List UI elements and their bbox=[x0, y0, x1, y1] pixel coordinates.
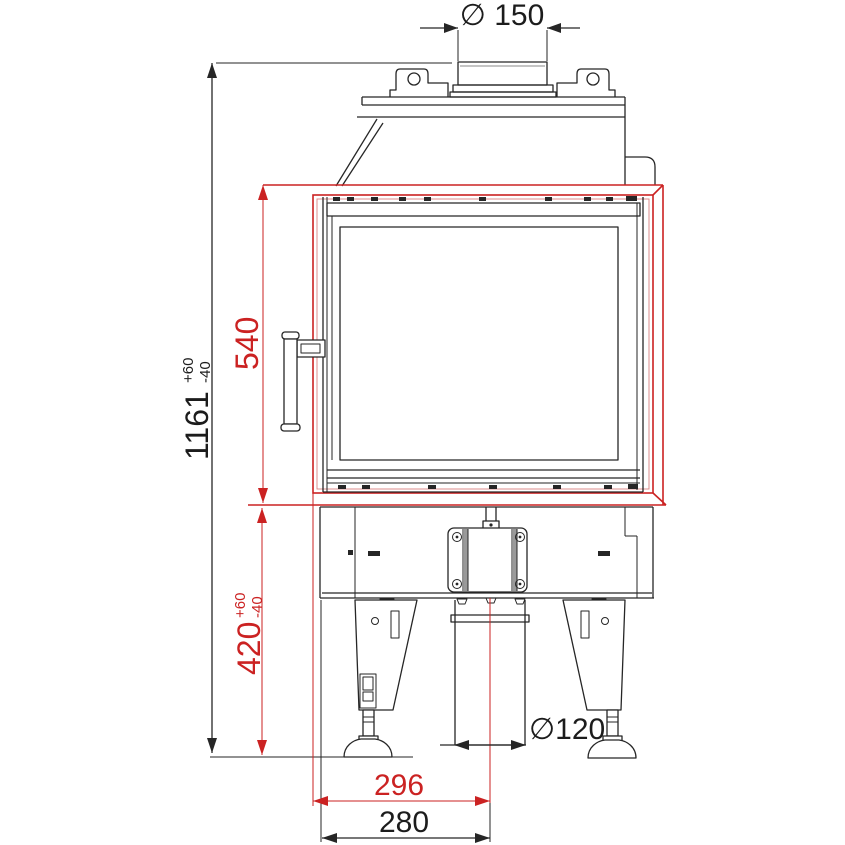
leg-left bbox=[355, 600, 417, 710]
leg-right bbox=[563, 600, 625, 710]
dim-opening-height-value: 540 bbox=[229, 317, 265, 370]
handle-shaft bbox=[284, 339, 297, 424]
door-handle bbox=[281, 332, 325, 431]
dim-base-height-tol-minus: -40 bbox=[249, 596, 266, 618]
air-control-box bbox=[448, 507, 527, 592]
top-mounting-brackets bbox=[390, 69, 615, 97]
extension-lines bbox=[210, 63, 490, 842]
firebox-door bbox=[323, 196, 643, 492]
dim-opening-height: 540 bbox=[229, 185, 268, 503]
dim-total-height: 1161 +60 -40 bbox=[179, 63, 217, 753]
technical-drawing-canvas: ∅ 150 1161 +60 -40 540 420 +60 -40 bbox=[0, 0, 845, 845]
base-slot-right bbox=[598, 551, 610, 556]
door-top-rail bbox=[327, 203, 640, 216]
hood-right-flange bbox=[625, 157, 655, 185]
dim-flue-diameter: ∅ 150 bbox=[420, 0, 580, 33]
dim-offset-296-value: 296 bbox=[374, 769, 424, 802]
bracket-hole-right bbox=[587, 73, 599, 85]
dim-total-height-tol-minus: -40 bbox=[197, 361, 214, 383]
fireplace-dimension-drawing: ∅ 150 1161 +60 -40 540 420 +60 -40 bbox=[0, 0, 845, 845]
dim-total-height-tol-plus: +60 bbox=[180, 358, 197, 383]
foot-left bbox=[344, 739, 392, 757]
base-slot-left bbox=[368, 551, 380, 556]
dim-intake-diameter-label: ∅120 bbox=[529, 713, 605, 746]
bracket-hole-left bbox=[408, 73, 420, 85]
door-glass bbox=[340, 227, 618, 460]
dim-base-height-value: 420 bbox=[231, 622, 267, 675]
top-plate-and-hood bbox=[336, 97, 655, 186]
dim-offset-280-value: 280 bbox=[379, 806, 429, 839]
dim-flue-diameter-label: ∅ 150 bbox=[460, 0, 545, 32]
flue-collar bbox=[450, 30, 556, 97]
door-top-bolts bbox=[333, 196, 637, 201]
dim-offset-280: 280 bbox=[322, 806, 490, 843]
door-bottom-bolts bbox=[338, 484, 638, 489]
dim-base-height-tol-plus: +60 bbox=[232, 593, 249, 618]
dim-offset-296: 296 bbox=[313, 769, 490, 806]
dim-base-height: 420 +60 -40 bbox=[231, 508, 267, 755]
dim-intake-diameter: ∅120 bbox=[440, 713, 605, 750]
dim-total-height-value: 1161 bbox=[179, 391, 215, 460]
